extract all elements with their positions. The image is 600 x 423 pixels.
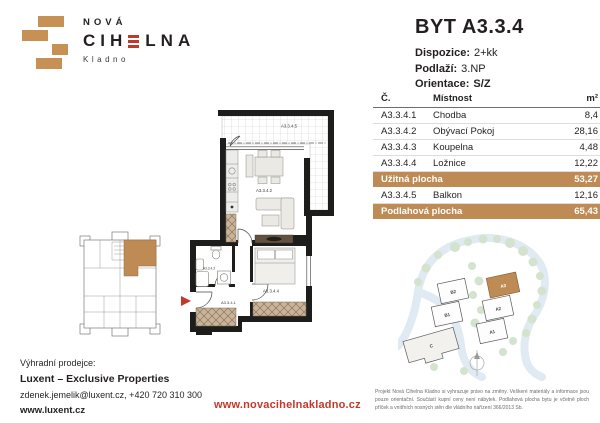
room-name: Koupelna — [433, 140, 543, 156]
room-area: 12,16 — [543, 188, 600, 204]
hall-label: A3.3.4.1 — [221, 300, 237, 305]
room-number: A3.3.4.1 — [373, 108, 433, 124]
bedroom-label: A3.3.4.4 — [263, 289, 280, 294]
seller-contact[interactable]: zdenek.jemelik@luxent.cz, +420 720 310 3… — [20, 388, 202, 402]
coffee-table — [262, 215, 279, 226]
room-number: A3.3.4.5 — [373, 188, 433, 204]
logo-cihelna-left: CIH — [83, 31, 127, 51]
tv-icon — [267, 237, 282, 241]
wardrobe — [253, 302, 306, 316]
entrance-gap — [190, 292, 196, 312]
room-number: A3.3.4.3 — [373, 140, 433, 156]
floor-key-plan — [60, 225, 180, 347]
wardrobe — [196, 308, 236, 326]
spec-label: Dispozice: — [415, 47, 470, 59]
usable-area-label: Užitná plocha — [373, 172, 543, 188]
room-table: Č. Místnost m² A3.3.4.1 Chodba 8,4 A3.3.… — [373, 91, 600, 220]
spec-value: S/Z — [473, 78, 490, 90]
seller-website-link[interactable]: www.luxent.cz — [20, 404, 202, 418]
room-name: Obývací Pokoj — [433, 124, 543, 140]
brick-logo-icon — [16, 10, 74, 74]
apartment-floorplan: A3.3.4.5 A3.3.4.2 A3.3.4.3 A3.3.4.1 A3.3… — [178, 93, 370, 355]
appliance-dot — [231, 206, 234, 209]
room-area: 8,4 — [543, 108, 600, 124]
total-area-label: Podlahová plocha — [373, 204, 543, 220]
brick-shape — [36, 58, 62, 69]
bath-label: A3.3.4.3 — [203, 267, 215, 271]
wardrobe — [226, 214, 236, 242]
spec-dispozice: Dispozice:2+kk — [415, 46, 524, 62]
toilet-tank — [211, 247, 221, 251]
building-b2: B2 — [437, 278, 469, 303]
window-line — [226, 147, 304, 150]
usable-area-row: Užitná plocha 53,27 — [373, 172, 600, 188]
spec-label: Podlaží: — [415, 63, 457, 75]
kitchen-units — [226, 150, 238, 212]
door-gap — [238, 240, 252, 246]
room-area: 28,16 — [543, 124, 600, 140]
spec-label: Orientace: — [415, 78, 469, 90]
bathtub-icon — [196, 272, 209, 287]
logo: NOVÁ CIHLNA Kladno — [83, 17, 195, 64]
building-c: C — [403, 327, 460, 367]
col-area: m² — [543, 91, 600, 108]
balcony-label: A3.3.4.5 — [281, 124, 298, 129]
table-row: A3.3.4.3 Koupelna 4,48 — [373, 140, 600, 156]
room-area: 4,48 — [543, 140, 600, 156]
logo-nova-text: NOVÁ — [83, 17, 195, 28]
apartment-header: BYT A3.3.4 Dispozice:2+kk Podlaží:3.NP O… — [415, 16, 524, 93]
building-a3-highlighted: A3 — [486, 272, 520, 298]
brick-shape — [52, 44, 68, 55]
spec-value: 3.NP — [461, 63, 485, 75]
page-title: BYT A3.3.4 — [415, 16, 524, 39]
site-plan: B2 B1 A3 A2 A1 C — [398, 228, 592, 382]
room-number: A3.3.4.2 — [373, 124, 433, 140]
toilet-icon — [212, 250, 220, 259]
logo-cihelna-text: CIHLNA — [83, 31, 195, 51]
table-row: A3.3.4.5 Balkon 12,16 — [373, 188, 600, 204]
col-room: Místnost — [433, 91, 543, 108]
table-row: A3.3.4.1 Chodba 8,4 — [373, 108, 600, 124]
disclaimer-text: Projekt Nová Cihelna Kladno si vyhrazuje… — [375, 389, 589, 412]
building-a1: A1 — [476, 318, 508, 343]
logo-city-text: Kladno — [83, 55, 195, 64]
total-area-row: Podlahová plocha 65,43 — [373, 204, 600, 220]
logo-cihelna-right: LNA — [145, 31, 195, 51]
bed — [255, 248, 295, 284]
spec-value: 2+kk — [474, 47, 498, 59]
spec-podlazi: Podlaží:3.NP — [415, 62, 524, 78]
brick-shape — [22, 30, 48, 41]
seller-label: Výhradní prodejce: — [20, 356, 202, 370]
living-label: A3.3.4.2 — [256, 188, 273, 193]
table-header-row: Č. Místnost m² — [373, 91, 600, 108]
table-row: A3.3.4.2 Obývací Pokoj 28,16 — [373, 124, 600, 140]
col-number: Č. — [373, 91, 433, 108]
brick-e-icon — [128, 33, 139, 50]
total-area-value: 65,43 — [543, 204, 600, 220]
building-a2: A2 — [482, 295, 514, 320]
seller-block: Výhradní prodejce: Luxent – Exclusive Pr… — [20, 356, 202, 418]
table-row: A3.3.4.4 Ložnice 12,22 — [373, 156, 600, 172]
room-area: 12,22 — [543, 156, 600, 172]
room-name: Chodba — [433, 108, 543, 124]
room-number: A3.3.4.4 — [373, 156, 433, 172]
entrance-arrow-icon — [181, 296, 191, 306]
dining-set — [246, 151, 283, 184]
bedroom-window — [305, 256, 313, 286]
project-website-link[interactable]: www.novacihelnakladno.cz — [214, 399, 361, 411]
room-name: Balkon — [433, 188, 543, 204]
floorplan-sheet: NOVÁ CIHLNA Kladno BYT A3.3.4 Dispozice:… — [0, 0, 600, 423]
usable-area-value: 53,27 — [543, 172, 600, 188]
brick-shape — [38, 16, 64, 27]
seller-name: Luxent – Exclusive Properties — [20, 372, 202, 386]
room-name: Ložnice — [433, 156, 543, 172]
